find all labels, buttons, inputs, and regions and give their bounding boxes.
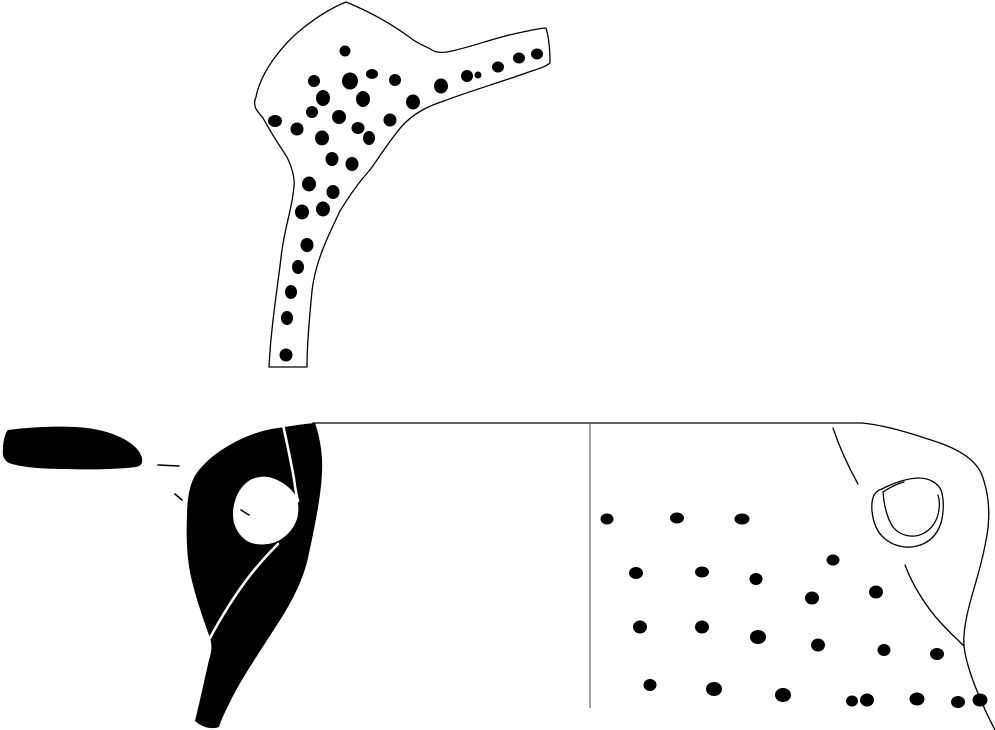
punctate-dot xyxy=(342,73,358,90)
punctate-dot xyxy=(315,131,329,146)
punctate-dot xyxy=(281,311,293,325)
below-lug-curve xyxy=(905,565,964,646)
vessel-exterior-view xyxy=(313,423,995,730)
punctate-dot xyxy=(860,694,874,707)
shoulder-crease-line xyxy=(833,428,858,484)
punctate-dot xyxy=(363,131,375,145)
punctate-dot xyxy=(633,621,647,634)
punctate-dot xyxy=(332,110,346,124)
punctate-dot xyxy=(434,79,448,94)
punctate-dot xyxy=(644,679,657,691)
punctate-dot xyxy=(291,123,304,136)
punctate-dot xyxy=(268,115,282,127)
pottery-drawing xyxy=(0,0,995,730)
punctate-dot xyxy=(750,573,763,585)
punctate-dot xyxy=(389,74,401,86)
punctate-dot xyxy=(750,630,766,644)
tick-mark-horizontal xyxy=(158,465,179,466)
punctate-dot xyxy=(295,205,309,220)
punctate-dot xyxy=(735,514,750,525)
punctate-dot xyxy=(327,185,340,199)
punctate-dot xyxy=(910,693,925,706)
figure-page xyxy=(0,0,995,730)
orientation-ticks xyxy=(158,465,182,500)
punctate-dot xyxy=(805,592,819,605)
punctate-dot xyxy=(301,238,314,252)
punctate-dot xyxy=(695,621,709,634)
punctate-dot xyxy=(531,49,543,60)
handle-section-profile xyxy=(187,423,323,728)
punctate-dot xyxy=(492,62,504,73)
punctate-dot xyxy=(775,688,791,702)
punctate-dot xyxy=(930,648,944,660)
punctate-dot xyxy=(811,639,825,652)
handle-section-body xyxy=(187,423,323,728)
punctate-dot xyxy=(306,106,318,118)
punctate-dot xyxy=(366,69,378,79)
punctate-dot xyxy=(285,285,297,299)
punctate-dot xyxy=(340,46,351,57)
punctate-dot xyxy=(292,260,304,274)
punctate-dot xyxy=(695,567,709,578)
punctate-dot xyxy=(670,513,684,524)
punctate-dot xyxy=(384,114,397,127)
punctate-dot xyxy=(846,696,858,707)
lug-handle-outline xyxy=(872,478,943,547)
punctate-dot xyxy=(308,75,320,87)
punctate-dot xyxy=(352,122,365,134)
handle-hole-tick xyxy=(241,510,249,515)
punctate-dot xyxy=(316,202,330,217)
punctate-dot xyxy=(326,152,339,166)
punctate-dot xyxy=(878,644,891,656)
punctate-dot xyxy=(706,682,722,696)
punctate-dot xyxy=(629,567,643,579)
punctate-dot xyxy=(302,177,316,192)
punctate-dot xyxy=(346,157,359,171)
punctate-dot xyxy=(316,90,330,106)
punctate-dot xyxy=(601,514,614,525)
punctate-dot xyxy=(869,586,883,599)
vessel-punctate-dots xyxy=(601,513,988,709)
top-sherd-exterior-view xyxy=(255,2,550,367)
punctate-dot xyxy=(406,95,420,110)
top-sherd-outline xyxy=(255,2,550,367)
punctate-dot xyxy=(513,53,525,64)
lug-handle-inner-curve xyxy=(883,492,939,536)
rim-section-profile xyxy=(3,427,143,470)
punctate-dot xyxy=(280,349,293,362)
punctate-dot xyxy=(973,694,988,707)
punctate-dot xyxy=(475,72,482,79)
punctate-dot xyxy=(461,70,473,82)
punctate-dot xyxy=(827,555,840,566)
punctate-dot xyxy=(951,696,965,708)
rim-section-blob xyxy=(3,427,143,470)
tick-mark-diagonal xyxy=(175,494,182,500)
punctate-dot xyxy=(356,91,370,107)
